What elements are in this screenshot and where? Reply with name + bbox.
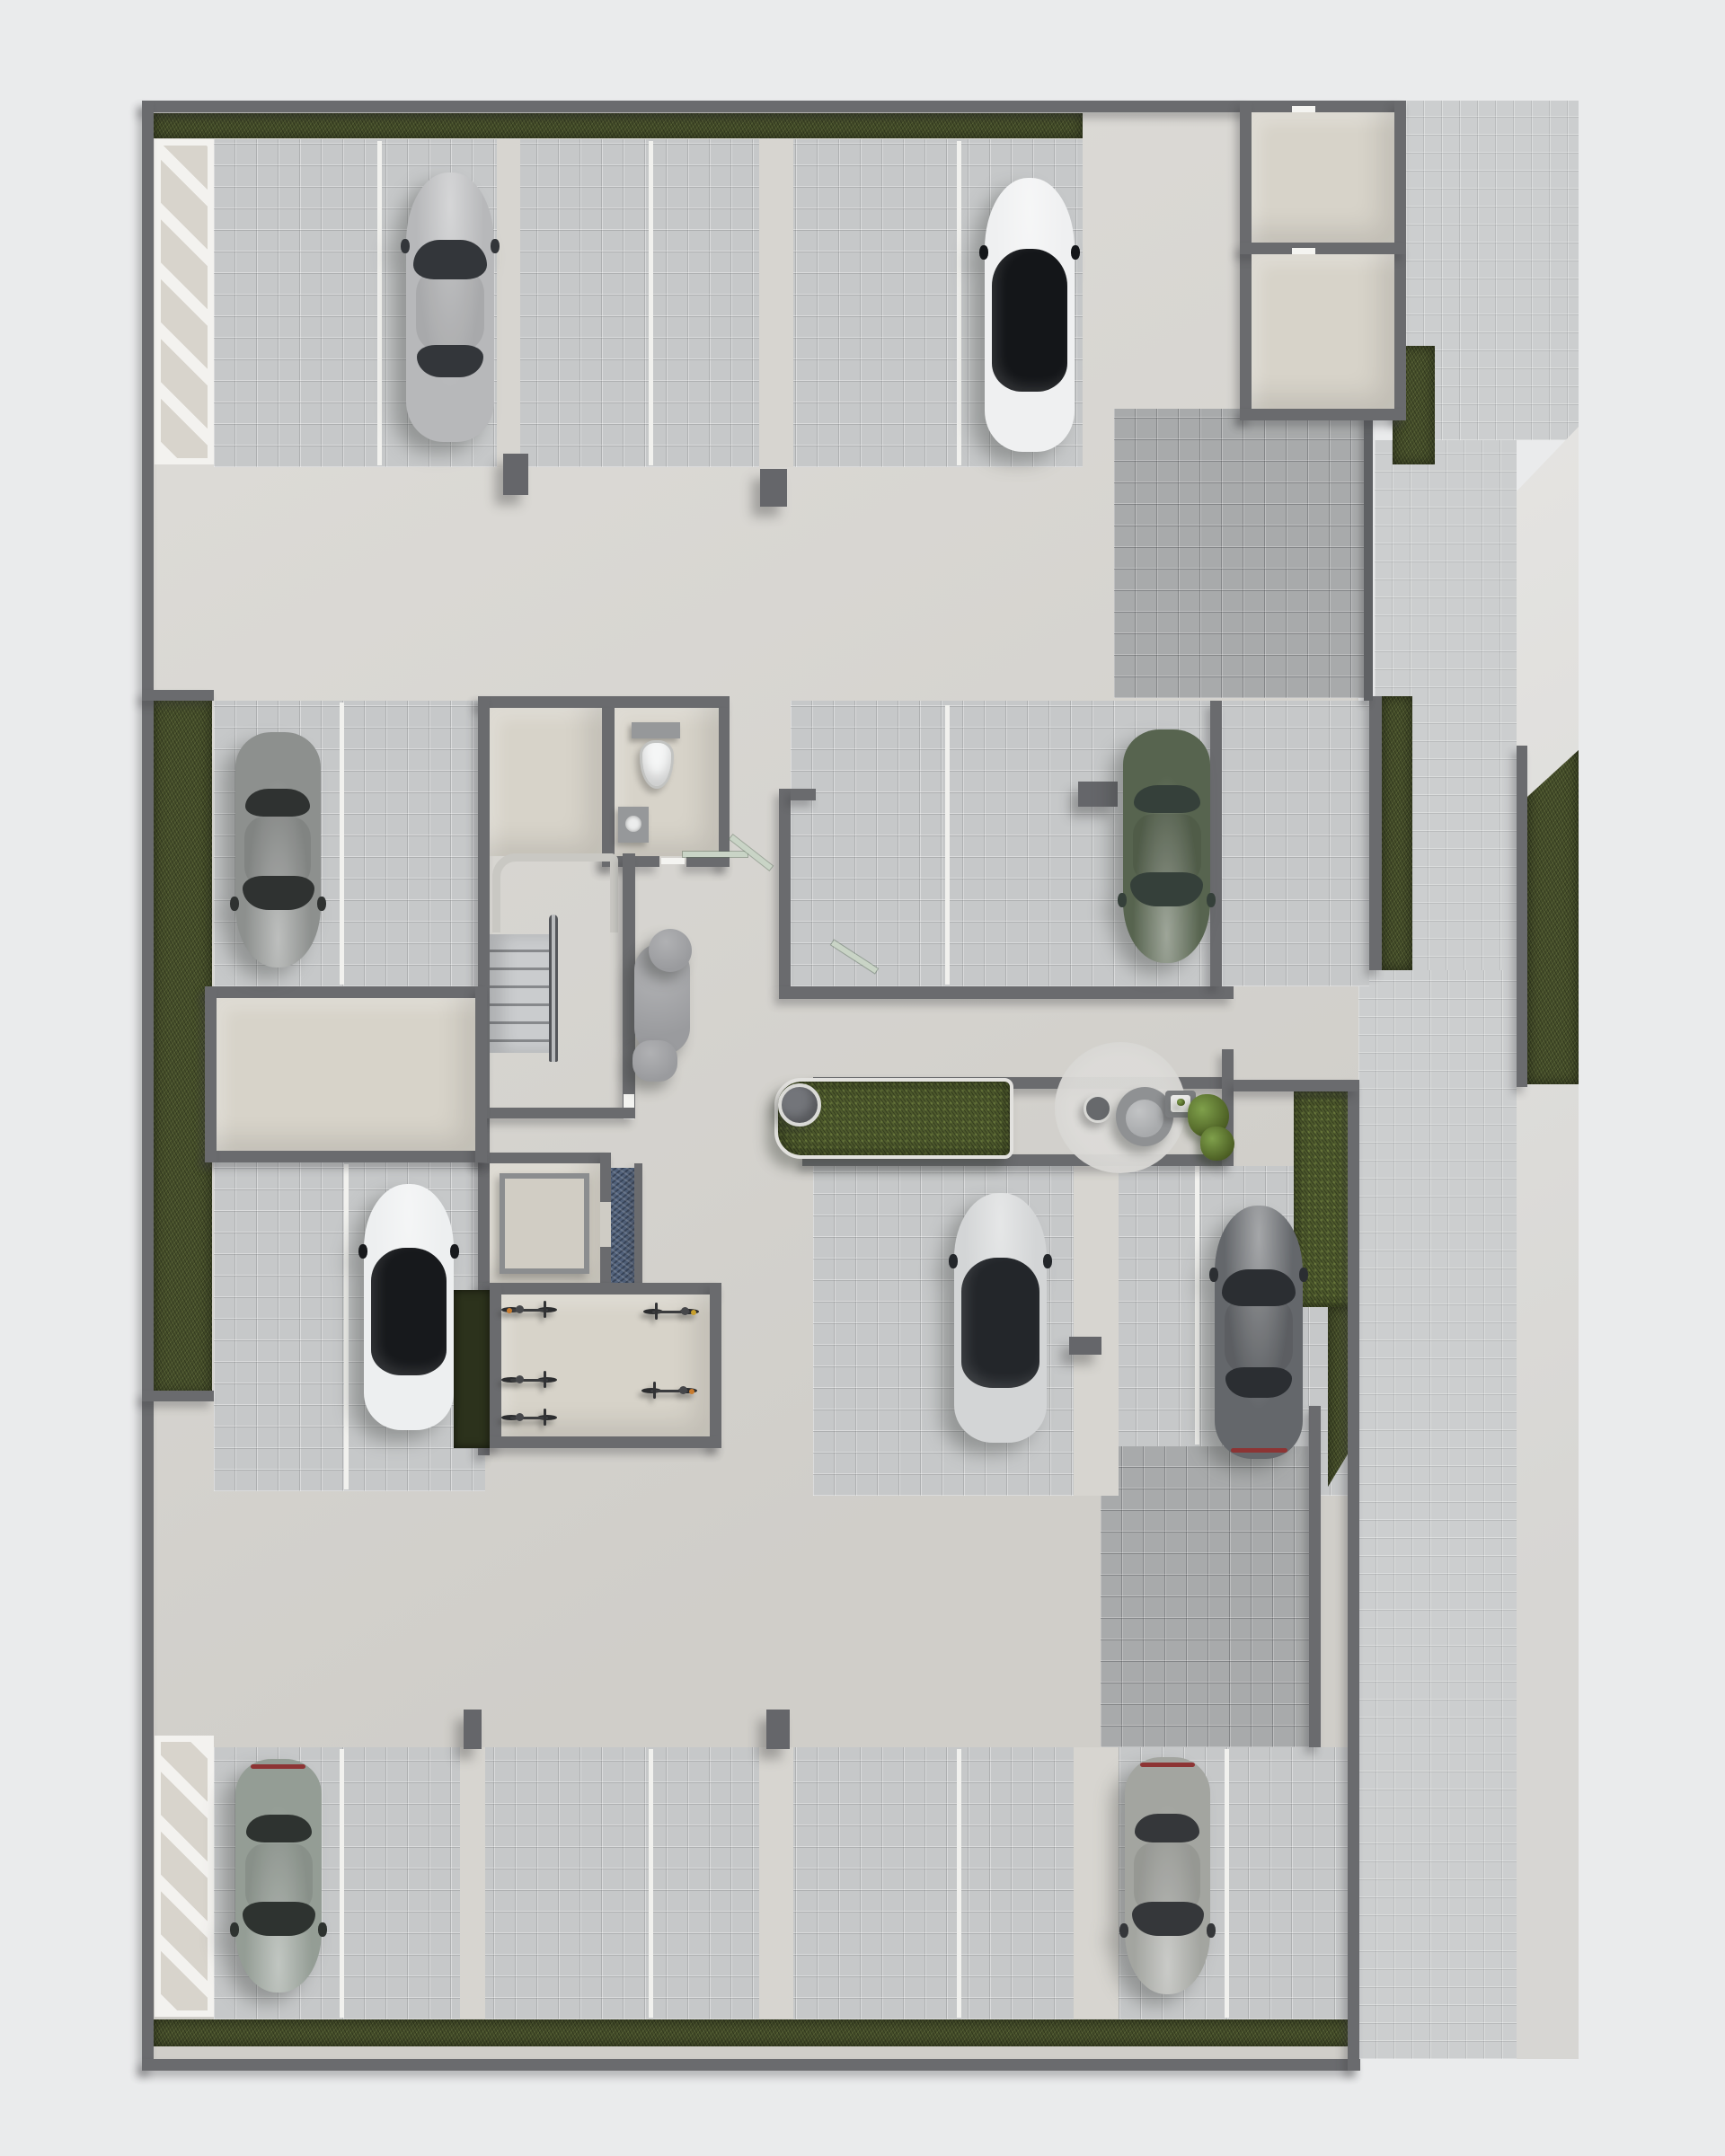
bike-saddle: [516, 1305, 524, 1313]
car-mirror-right: [450, 1244, 459, 1259]
bay-wall-upper-bottom: [779, 986, 1234, 999]
column: [503, 454, 528, 495]
car-glass-roof: [371, 1248, 447, 1375]
wc-bottom-wall-b: [686, 856, 730, 867]
car-windshield: [243, 1902, 315, 1936]
car-glass-roof: [992, 249, 1067, 392]
car-windshield: [1130, 872, 1203, 906]
car-windshield: [1222, 1269, 1296, 1306]
patio-plant-small: [1200, 1127, 1234, 1161]
car-silver-top-left: [406, 172, 494, 442]
hedge-strip-mid-right: [1382, 696, 1412, 970]
service-shaft: [611, 1168, 634, 1283]
car-gray-mid-left: [235, 732, 321, 968]
wc-door-leaf: [661, 858, 685, 864]
bike-room-wall-top: [490, 1283, 721, 1294]
wall-cap-left-lower: [142, 1391, 214, 1401]
car-mirror-right: [1043, 1254, 1052, 1268]
outer-wall-left: [142, 101, 154, 2071]
stall-line: [649, 141, 653, 465]
car-rear-window: [417, 345, 483, 377]
parking-row-mid-upper-far-right: [1222, 701, 1369, 986]
bicycle: [641, 1383, 697, 1398]
walkway-strip-row-top-a: [497, 139, 520, 467]
storage-room-left-floor: [217, 998, 475, 1151]
stall-line: [377, 141, 382, 465]
wall-cap-left-upper: [142, 690, 214, 701]
grass-strip-top: [153, 113, 1083, 138]
car-mirror-left: [1209, 1268, 1218, 1282]
no-parking-hatch-top-left: [155, 139, 214, 464]
stall-line: [957, 141, 961, 465]
shaft-wall: [634, 1163, 642, 1289]
bike-saddle: [516, 1375, 524, 1383]
car-gray-bottom-right: [1125, 1757, 1210, 1994]
car-roof: [416, 269, 484, 350]
car-mirror-left: [949, 1254, 958, 1268]
column: [766, 1710, 790, 1749]
hedge-wall-mid-right: [1369, 696, 1382, 970]
exterior-grass-retaining-wall: [1517, 746, 1527, 1087]
wc-right-wall: [719, 708, 730, 867]
bike-saddle: [516, 1413, 524, 1421]
storage-room-left-wall-r: [475, 986, 487, 1162]
outer-wall-top: [142, 101, 1406, 112]
storage-room-left-wall-l: [205, 986, 217, 1162]
car-mirror-left: [358, 1244, 367, 1259]
no-parking-hatch-bottom-left: [155, 1736, 214, 2017]
floor-plan-canvas: [0, 0, 1725, 2156]
stair-handrail: [549, 915, 558, 1062]
car-mirror-left: [230, 1922, 239, 1937]
car-roof: [1225, 1297, 1293, 1374]
storage-room-b-floor: [1252, 254, 1394, 409]
bike-room-wall-right: [710, 1283, 721, 1448]
stall-line: [649, 1749, 653, 2018]
storage-room-left-wall-bottom: [205, 1151, 487, 1162]
car-taillight-bar: [251, 1764, 305, 1769]
elevator-cab: [500, 1173, 589, 1274]
driveway-patch-lower: [1101, 1446, 1309, 1747]
walkway-strip-row-bottom-a: [460, 1747, 485, 2019]
lobby-sofa-foot: [632, 1040, 677, 1082]
bike-handlebar: [544, 1371, 546, 1388]
elevator-wall-top: [478, 1153, 611, 1163]
car-rear-window: [1134, 785, 1200, 813]
patio-tray-plant: [1177, 1099, 1185, 1106]
stall-line: [1225, 1749, 1229, 2018]
column: [464, 1710, 482, 1749]
car-taillight-bar: [1140, 1763, 1195, 1767]
car-sage-bottom-left: [235, 1759, 322, 1993]
bike-saddle: [681, 1307, 689, 1315]
storage-room-a-floor: [1252, 112, 1394, 243]
bike-saddle: [679, 1386, 687, 1394]
glass-door-straight: [683, 852, 747, 857]
walkway-strip-row-bottom-c: [1074, 1747, 1119, 2019]
storage-room-b-door: [1292, 248, 1315, 254]
car-taillight-bar: [1231, 1448, 1287, 1453]
column: [1078, 782, 1118, 807]
wc-divider-wall: [602, 708, 615, 867]
car-green-mid-right: [1123, 729, 1210, 963]
toilet-tank: [632, 722, 680, 738]
bike-accent: [507, 1308, 512, 1313]
bike-accent: [691, 1310, 696, 1315]
column: [760, 469, 787, 507]
patio-armchair-seat: [1126, 1100, 1163, 1137]
car-mirror-left: [979, 245, 988, 260]
storage-room-wall-left: [1240, 101, 1252, 420]
car-graphite-center-right: [1215, 1206, 1303, 1459]
hedge-top-wall: [1234, 1080, 1358, 1091]
car-mirror-right: [1299, 1268, 1308, 1282]
core-wall-top: [478, 696, 730, 708]
car-glass-roof: [961, 1258, 1039, 1388]
column: [1069, 1337, 1101, 1355]
bike-handlebar: [653, 1382, 656, 1399]
lobby-sofa-arm: [649, 929, 692, 972]
storage-room-wall-bottom: [1240, 409, 1406, 420]
stall-line: [957, 1749, 961, 2018]
car-mirror-left: [401, 239, 410, 253]
bike-accent: [689, 1389, 694, 1394]
car-mirror-right: [1207, 1923, 1216, 1938]
bike-room-wall-left: [490, 1283, 501, 1448]
car-windshield: [413, 240, 487, 279]
lobby-floor: [490, 708, 602, 856]
bay-wall-upper-left-cap: [791, 789, 816, 800]
stair-bottom-wall: [478, 1108, 635, 1118]
car-mirror-left: [1118, 893, 1127, 907]
storage-room-wall-mid: [1240, 243, 1406, 254]
kerb-driveway-upper: [1364, 409, 1373, 701]
elevator-door-gap: [600, 1202, 611, 1247]
stall-line: [344, 1164, 349, 1489]
driveway-patch-upper: [1114, 409, 1366, 698]
car-rear-window: [1135, 1814, 1199, 1842]
car-mirror-right: [491, 239, 500, 253]
dark-planting-sliver: [454, 1290, 490, 1448]
wc-sink-basin: [625, 816, 641, 832]
bike-handlebar: [655, 1303, 658, 1320]
bike-handlebar: [544, 1409, 546, 1426]
patio-side-table: [1084, 1094, 1112, 1123]
exterior-walkway-right-edge: [1517, 427, 1579, 2059]
exterior-sidewalk-right-lower: [1358, 970, 1517, 2059]
bay-wall-upper-left-vertical: [779, 789, 791, 986]
car-mirror-right: [1071, 245, 1080, 260]
bike-room-wall-bottom: [490, 1436, 721, 1448]
car-windshield: [243, 876, 314, 910]
car-mirror-right: [317, 897, 326, 911]
storage-room-wall-right: [1394, 101, 1406, 420]
storage-room-left-wall-top: [205, 986, 487, 998]
grass-strip-bottom: [153, 2019, 1353, 2046]
car-white-top-right: [985, 178, 1075, 452]
bike-handlebar: [544, 1301, 546, 1318]
car-rear-window: [245, 789, 310, 817]
planter-pot: [778, 1083, 821, 1127]
car-white-center-left: [364, 1184, 454, 1430]
car-rear-window: [1225, 1367, 1292, 1398]
wall-mid-lower-right: [1309, 1406, 1321, 1747]
car-windshield: [1132, 1902, 1204, 1936]
car-mirror-left: [1119, 1923, 1128, 1938]
bay-wall-upper-right: [1210, 701, 1222, 986]
stall-line: [945, 705, 950, 985]
outer-wall-bottom: [142, 2059, 1360, 2071]
exterior-grass-strip-right: [1527, 750, 1579, 1084]
bicycle: [643, 1304, 699, 1319]
bicycle: [501, 1410, 557, 1425]
walkway-strip-mid-lower: [1074, 1166, 1119, 1496]
grass-strip-left: [153, 696, 212, 1394]
stair-flight: [490, 934, 549, 1053]
stall-line: [1195, 1166, 1199, 1445]
car-silver-center: [954, 1193, 1047, 1443]
car-mirror-right: [1207, 893, 1216, 907]
stall-line: [340, 1749, 344, 2018]
car-rear-window: [246, 1815, 312, 1842]
storage-room-a-door: [1292, 106, 1315, 112]
bicycle: [501, 1303, 557, 1317]
walkway-strip-row-bottom-b: [759, 1747, 793, 2019]
car-mirror-left: [230, 897, 239, 911]
stall-line: [340, 702, 344, 985]
walkway-strip-row-top-b: [759, 139, 793, 467]
bicycle: [501, 1373, 557, 1387]
car-mirror-right: [318, 1922, 327, 1937]
outer-wall-right: [1348, 1080, 1359, 2071]
